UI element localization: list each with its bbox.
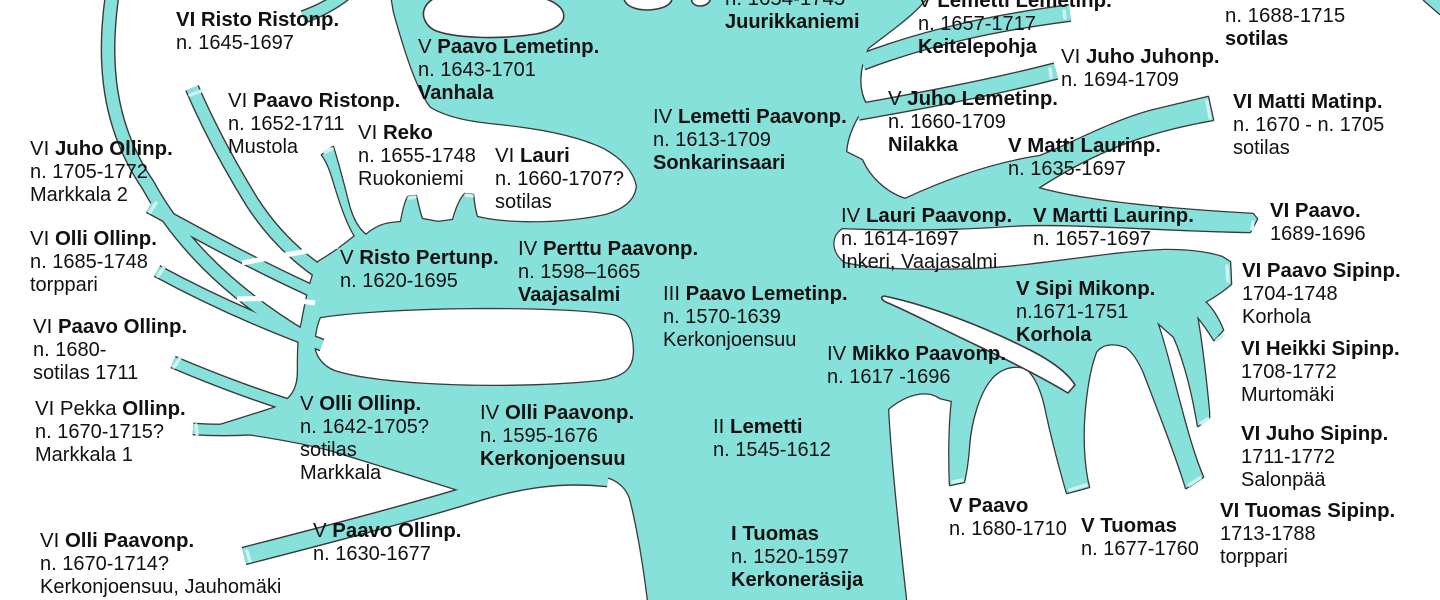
- svg-text:VI Juho Sipinp.: VI Juho Sipinp.: [1241, 423, 1388, 445]
- svg-text:VI Tuomas Sipinp.: VI Tuomas Sipinp.: [1220, 500, 1395, 522]
- svg-text:n. 1657-1717: n. 1657-1717: [918, 13, 1036, 35]
- svg-text:VI Lauri: VI Lauri: [495, 145, 570, 167]
- svg-text:1713-1788: 1713-1788: [1220, 523, 1316, 545]
- svg-text:1711-1772: 1711-1772: [1241, 446, 1335, 468]
- svg-text:Keitelepohja: Keitelepohja: [918, 36, 1038, 58]
- svg-text:Sonkarinsaari: Sonkarinsaari: [653, 152, 785, 174]
- svg-text:III Paavo Lemetinp.: III Paavo Lemetinp.: [663, 283, 848, 305]
- svg-text:n. 1657-1697: n. 1657-1697: [1033, 228, 1151, 250]
- svg-text:n. 1570-1639: n. 1570-1639: [663, 306, 781, 328]
- svg-text:n. 1705-1772: n. 1705-1772: [30, 161, 148, 183]
- svg-text:n. 1660-1709: n. 1660-1709: [888, 111, 1006, 133]
- svg-text:V Juho Lemetinp.: V Juho Lemetinp.: [888, 88, 1058, 110]
- svg-text:n. 1680-: n. 1680-: [33, 339, 106, 361]
- svg-text:VI Heikki Sipinp.: VI Heikki Sipinp.: [1241, 338, 1400, 360]
- svg-text:IV Lemetti Paavonp.: IV Lemetti Paavonp.: [653, 106, 847, 128]
- svg-text:n. 1642-1705?: n. 1642-1705?: [300, 416, 429, 438]
- svg-text:V Matti Laurinp.: V Matti Laurinp.: [1008, 135, 1161, 157]
- svg-text:Markkala 1: Markkala 1: [35, 444, 133, 466]
- svg-text:1708-1772: 1708-1772: [1241, 361, 1337, 383]
- svg-text:IV Lauri Paavonp.: IV Lauri Paavonp.: [841, 205, 1012, 227]
- svg-text:1704-1748: 1704-1748: [1242, 283, 1338, 305]
- svg-text:n. 1677-1760: n. 1677-1760: [1081, 538, 1199, 560]
- svg-text:n. 1545-1612: n. 1545-1612: [713, 439, 831, 461]
- svg-text:VI Olli Paavonp.: VI Olli Paavonp.: [40, 530, 194, 552]
- svg-text:V Lemetti Lemetinp.: V Lemetti Lemetinp.: [918, 0, 1112, 12]
- svg-text:Juurikkaniemi: Juurikkaniemi: [725, 11, 860, 33]
- svg-text:V Paavo: V Paavo: [949, 495, 1028, 517]
- svg-text:n. 1643-1701: n. 1643-1701: [418, 59, 536, 81]
- svg-text:VI Juho Ollinp.: VI Juho Ollinp.: [30, 138, 173, 160]
- svg-text:n. 1614-1697: n. 1614-1697: [841, 228, 959, 250]
- svg-text:1689-1696: 1689-1696: [1270, 223, 1366, 245]
- svg-text:sotilas: sotilas: [300, 439, 357, 461]
- svg-text:V Olli Ollinp.: V Olli Ollinp.: [300, 393, 421, 415]
- svg-text:VI Paavo Ristonp.: VI Paavo Ristonp.: [228, 90, 400, 112]
- svg-text:n. 1520-1597: n. 1520-1597: [731, 546, 849, 568]
- svg-text:I Tuomas: I Tuomas: [731, 523, 819, 545]
- svg-text:Korhola: Korhola: [1242, 306, 1312, 328]
- svg-text:VI Juho Juhonp.: VI Juho Juhonp.: [1061, 46, 1220, 68]
- svg-text:V Risto Pertunp.: V Risto Pertunp.: [340, 247, 499, 269]
- svg-text:n. 1635-1697: n. 1635-1697: [1008, 158, 1126, 180]
- svg-text:n. 1694-1709: n. 1694-1709: [1061, 69, 1179, 91]
- svg-text:Murtomäki: Murtomäki: [1241, 384, 1334, 406]
- svg-text:Vanhala: Vanhala: [418, 82, 494, 104]
- svg-text:n. 1680-1710: n. 1680-1710: [949, 518, 1067, 540]
- svg-text:n. 1685-1748: n. 1685-1748: [30, 251, 148, 273]
- svg-text:VI Matti Matinp.: VI Matti Matinp.: [1233, 91, 1383, 113]
- svg-text:VI Paavo Sipinp.: VI Paavo Sipinp.: [1242, 260, 1401, 282]
- svg-text:Korhola: Korhola: [1016, 324, 1092, 346]
- svg-text:n. 1652-1711: n. 1652-1711: [228, 113, 344, 135]
- svg-text:VI Pekka Ollinp.: VI Pekka Ollinp.: [35, 398, 186, 420]
- svg-text:n. 1613-1709: n. 1613-1709: [653, 129, 771, 151]
- svg-text:V Martti Laurinp.: V Martti Laurinp.: [1033, 205, 1194, 227]
- svg-text:sotilas 1711: sotilas 1711: [33, 362, 138, 384]
- svg-text:Nilakka: Nilakka: [888, 134, 959, 156]
- svg-text:IV Perttu Paavonp.: IV Perttu Paavonp.: [518, 238, 698, 260]
- svg-text:Mustola: Mustola: [228, 136, 299, 158]
- svg-text:Vaajasalmi: Vaajasalmi: [518, 284, 620, 306]
- svg-text:n. 1630-1677: n. 1630-1677: [313, 543, 431, 565]
- svg-text:VI Reko: VI Reko: [358, 122, 433, 144]
- svg-text:n. 1620-1695: n. 1620-1695: [340, 270, 458, 292]
- svg-text:IV Mikko Paavonp.: IV Mikko Paavonp.: [827, 343, 1006, 365]
- svg-text:n. 1655-1748: n. 1655-1748: [358, 145, 476, 167]
- svg-text:n. 1670-1714?: n. 1670-1714?: [40, 553, 169, 575]
- svg-text:n. 1595-1676: n. 1595-1676: [480, 425, 598, 447]
- svg-text:V Sipi Mikonp.: V Sipi Mikonp.: [1016, 278, 1155, 300]
- svg-text:Kerkonjoensuu: Kerkonjoensuu: [480, 448, 626, 470]
- svg-text:n. 1617 -1696: n. 1617 -1696: [827, 366, 950, 388]
- svg-text:VI Paavo Ollinp.: VI Paavo Ollinp.: [33, 316, 187, 338]
- svg-text:n. 1670-1715?: n. 1670-1715?: [35, 421, 164, 443]
- svg-text:Salonpää: Salonpää: [1241, 469, 1326, 491]
- svg-text:sotilas: sotilas: [1233, 137, 1290, 159]
- svg-text:V Paavo Ollinp.: V Paavo Ollinp.: [313, 520, 461, 542]
- svg-text:Kerkoneräsija: Kerkoneräsija: [731, 569, 864, 591]
- svg-text:II Lemetti: II Lemetti: [713, 416, 803, 438]
- svg-text:n. 1670 - n. 1705: n. 1670 - n. 1705: [1233, 114, 1384, 136]
- svg-text:torppari: torppari: [30, 274, 98, 296]
- svg-text:n. 1654-1745: n. 1654-1745: [725, 0, 845, 10]
- svg-text:Kerkonjoensuu: Kerkonjoensuu: [663, 329, 796, 351]
- svg-text:VI Risto Ristonp.: VI Risto Ristonp.: [176, 9, 339, 31]
- svg-text:V Paavo Lemetinp.: V Paavo Lemetinp.: [418, 36, 599, 58]
- svg-text:sotilas: sotilas: [1225, 28, 1288, 50]
- svg-text:n. 1660-1707?: n. 1660-1707?: [495, 168, 624, 190]
- svg-text:IV Olli Paavonp.: IV Olli Paavonp.: [480, 402, 634, 424]
- svg-text:VI Paavo.: VI Paavo.: [1270, 200, 1361, 222]
- svg-text:torppari: torppari: [1220, 546, 1288, 568]
- svg-text:n.1671-1751: n.1671-1751: [1016, 301, 1128, 323]
- svg-text:Ruokoniemi: Ruokoniemi: [358, 168, 464, 190]
- svg-text:Markkala 2: Markkala 2: [30, 184, 128, 206]
- svg-text:Markkala: Markkala: [300, 462, 382, 484]
- svg-text:Inkeri, Vaajasalmi: Inkeri, Vaajasalmi: [841, 251, 997, 273]
- svg-text:n. 1688-1715: n. 1688-1715: [1225, 5, 1345, 27]
- svg-text:VI Olli Ollinp.: VI Olli Ollinp.: [30, 228, 157, 250]
- svg-text:V Tuomas: V Tuomas: [1081, 515, 1177, 537]
- svg-text:Kerkonjoensuu, Jauhomäki: Kerkonjoensuu, Jauhomäki: [40, 576, 281, 598]
- svg-text:n. 1598–1665: n. 1598–1665: [518, 261, 640, 283]
- svg-text:n. 1645-1697: n. 1645-1697: [176, 32, 294, 54]
- svg-text:sotilas: sotilas: [495, 191, 552, 213]
